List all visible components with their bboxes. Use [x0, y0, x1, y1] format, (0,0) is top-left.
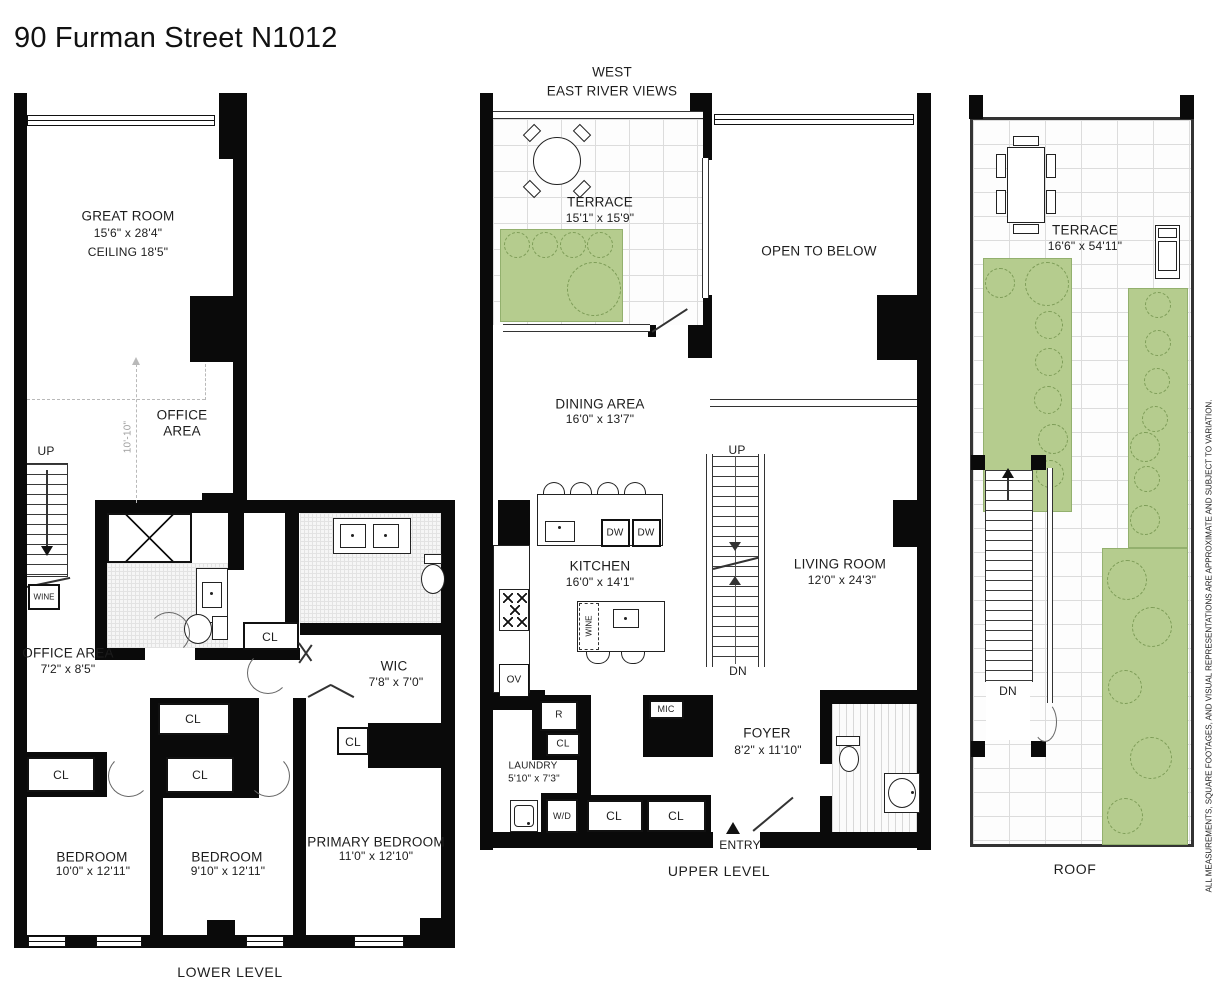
chair-icon: [1013, 136, 1039, 146]
tree-icon: [1142, 406, 1168, 432]
wall: [1031, 455, 1046, 470]
tree-icon: [1132, 607, 1172, 647]
grill-body: [1158, 241, 1177, 271]
stairs-icon: [985, 470, 1033, 682]
wall: [969, 95, 983, 119]
chair-icon: [1046, 154, 1056, 178]
roof-caption: ROOF: [1054, 861, 1097, 877]
chair-icon: [996, 190, 1006, 214]
chair-icon: [1046, 190, 1056, 214]
tree-icon: [985, 268, 1015, 298]
chair-icon: [1013, 224, 1039, 234]
tree-icon: [1145, 292, 1171, 318]
tree-icon: [1034, 386, 1062, 414]
roof-boundary: [970, 117, 1194, 120]
wall: [971, 455, 985, 470]
roof-boundary: [1191, 117, 1194, 847]
roof-table-icon: [1007, 147, 1045, 223]
tree-icon: [1107, 798, 1143, 834]
wall: [1031, 741, 1046, 757]
disclaimer-text: ALL MEASUREMENTS, SQUARE FOOTAGES, AND V…: [1205, 400, 1214, 893]
arrow-up-icon: [1002, 468, 1014, 478]
grill-top: [1158, 228, 1177, 238]
wall: [971, 741, 985, 757]
tree-icon: [1130, 432, 1160, 462]
tree-icon: [1107, 560, 1147, 600]
door-swing: [1033, 702, 1057, 742]
wall: [1180, 95, 1194, 119]
tree-icon: [1134, 466, 1160, 492]
tree-icon: [1025, 262, 1069, 306]
stair-rail: [1047, 468, 1053, 703]
roof-terrace-dims: 16'6" x 54'11": [1048, 239, 1122, 253]
floorplan-canvas: 90 Furman Street N1012 1: [0, 0, 1224, 1000]
tree-icon: [1130, 737, 1172, 779]
stairs-dn-label: DN: [999, 684, 1017, 698]
roof-boundary: [970, 117, 973, 847]
tree-icon: [1038, 424, 1068, 454]
tree-icon: [1130, 505, 1160, 535]
tree-icon: [1144, 368, 1170, 394]
chair-icon: [996, 154, 1006, 178]
tree-icon: [1035, 311, 1063, 339]
stair-direction-line: [1007, 476, 1009, 500]
tree-icon: [1108, 670, 1142, 704]
roof-terrace-label: TERRACE: [1052, 223, 1118, 238]
tree-icon: [1035, 348, 1063, 376]
roof-plan: TERRACE 16'6" x 54'11" DN: [0, 0, 1224, 1000]
tree-icon: [1145, 330, 1171, 356]
